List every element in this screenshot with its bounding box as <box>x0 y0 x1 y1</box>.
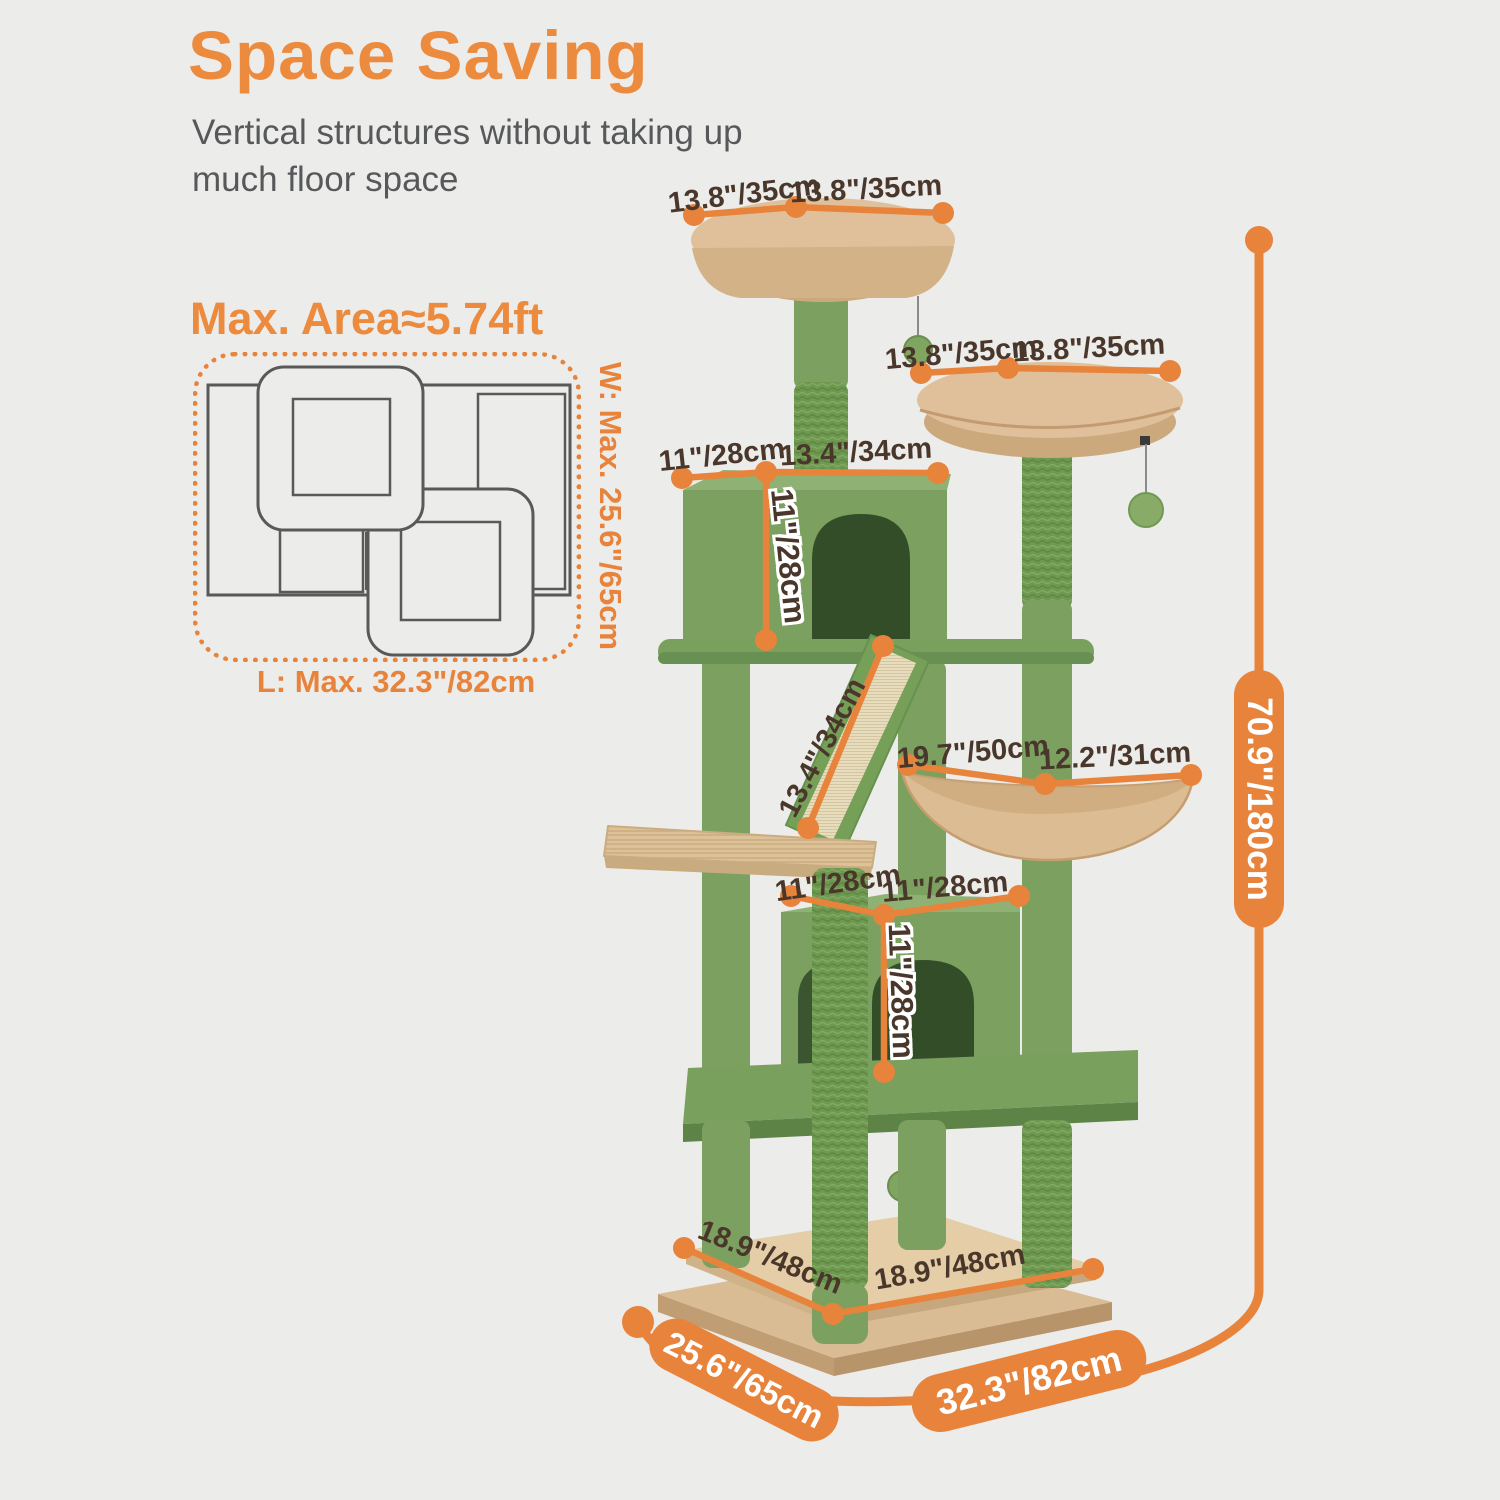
pill-total-height: 70.9"/180cm <box>1234 670 1284 928</box>
infographic-canvas: Space Saving Vertical structures without… <box>0 0 1500 1500</box>
upper-condo <box>683 470 951 650</box>
toy-ball-second <box>1129 436 1163 527</box>
dim-label-lower-condo-height: 11"/28cm <box>881 923 922 1060</box>
corner-rope-post <box>812 868 868 1290</box>
pom-ball-icon <box>1129 493 1163 527</box>
condo-arch-door <box>812 514 910 650</box>
